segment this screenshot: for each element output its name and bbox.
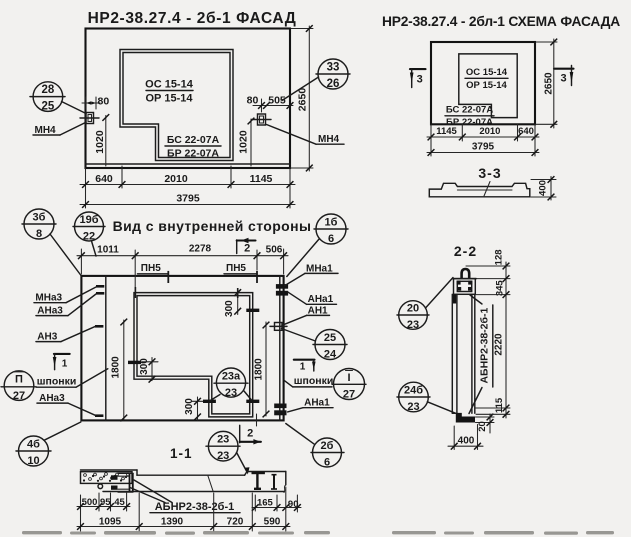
svg-text:26: 26	[327, 78, 340, 90]
svg-text:2010: 2010	[479, 126, 500, 137]
svg-text:2650: 2650	[297, 88, 309, 112]
svg-text:3795: 3795	[176, 193, 200, 205]
svg-text:НР2-38.27.4 - 2бл-1 СХЕМА ФАСА: НР2-38.27.4 - 2бл-1 СХЕМА ФАСАДА	[382, 14, 620, 29]
svg-text:2278: 2278	[189, 244, 212, 255]
svg-text:300: 300	[139, 358, 150, 375]
svg-text:23: 23	[217, 450, 229, 462]
svg-text:27: 27	[343, 389, 355, 401]
svg-text:400: 400	[538, 180, 549, 196]
svg-text:1011: 1011	[97, 245, 119, 256]
svg-text:23а: 23а	[222, 371, 241, 383]
svg-text:АНа1: АНа1	[308, 294, 334, 305]
svg-text:БС 22-07А: БС 22-07А	[446, 105, 494, 116]
svg-text:1: 1	[300, 362, 306, 373]
svg-text:3795: 3795	[472, 142, 495, 153]
svg-text:1145: 1145	[436, 126, 457, 137]
svg-text:БР 22-07А: БР 22-07А	[167, 148, 219, 160]
svg-text:1020: 1020	[238, 130, 250, 154]
svg-text:2010: 2010	[164, 173, 188, 185]
svg-text:2б: 2б	[321, 440, 334, 452]
svg-text:28: 28	[42, 84, 55, 96]
svg-text:АБНР2-38-2б-1: АБНР2-38-2б-1	[155, 501, 235, 513]
svg-text:МН4: МН4	[318, 134, 340, 145]
svg-text:3б: 3б	[33, 212, 46, 224]
svg-text:300: 300	[184, 398, 195, 415]
svg-text:1145: 1145	[250, 173, 273, 185]
svg-text:АНа1: АНа1	[304, 398, 330, 409]
svg-text:2220: 2220	[494, 333, 505, 356]
svg-text:3: 3	[560, 73, 566, 85]
svg-text:6: 6	[324, 457, 330, 469]
svg-text:6: 6	[328, 233, 334, 245]
svg-text:Вид с внутренней стороны: Вид с внутренней стороны	[113, 218, 312, 234]
svg-text:23: 23	[407, 319, 419, 331]
svg-text:90: 90	[288, 499, 299, 510]
svg-text:I: I	[347, 372, 350, 384]
svg-text:ОР 15-14: ОР 15-14	[466, 80, 507, 91]
svg-text:ПН5: ПН5	[141, 263, 161, 274]
svg-text:БС 22-07А: БС 22-07А	[167, 134, 220, 146]
svg-text:23: 23	[217, 434, 229, 446]
svg-text:1б: 1б	[325, 217, 338, 229]
svg-text:10: 10	[27, 455, 39, 467]
svg-text:1800: 1800	[253, 358, 264, 381]
svg-text:24: 24	[324, 349, 337, 361]
svg-text:20: 20	[477, 421, 488, 432]
svg-text:АНа3: АНа3	[39, 393, 65, 404]
svg-text:1-1: 1-1	[170, 446, 193, 461]
svg-text:80: 80	[247, 95, 259, 107]
svg-text:95: 95	[100, 497, 111, 508]
svg-text:128: 128	[494, 249, 505, 265]
svg-text:ОР 15-14: ОР 15-14	[145, 93, 193, 105]
svg-text:640: 640	[95, 173, 113, 185]
svg-text:МНа3: МНа3	[35, 292, 62, 303]
svg-text:ОС 15-14: ОС 15-14	[466, 67, 508, 78]
svg-text:1020: 1020	[94, 130, 106, 154]
svg-text:ПН5: ПН5	[226, 263, 246, 274]
svg-text:П: П	[15, 374, 23, 386]
svg-text:АН3: АН3	[37, 332, 57, 343]
svg-text:25: 25	[324, 332, 336, 344]
svg-text:590: 590	[264, 517, 281, 528]
svg-text:шпонки: шпонки	[37, 376, 77, 388]
svg-text:22: 22	[83, 231, 95, 243]
svg-text:80: 80	[98, 96, 110, 108]
svg-text:640: 640	[518, 126, 534, 137]
svg-text:115: 115	[494, 397, 505, 413]
svg-text:24б: 24б	[404, 385, 423, 397]
svg-text:НР2-38.27.4 - 2б-1 ФАСАД: НР2-38.27.4 - 2б-1 ФАСАД	[88, 10, 297, 27]
svg-text:23: 23	[225, 387, 237, 399]
svg-text:400: 400	[458, 436, 475, 447]
svg-text:1095: 1095	[99, 517, 122, 528]
svg-text:23: 23	[407, 401, 419, 413]
svg-text:1390: 1390	[161, 517, 184, 528]
svg-text:1800: 1800	[111, 356, 122, 379]
svg-text:19б: 19б	[79, 214, 98, 226]
svg-text:25: 25	[42, 101, 55, 113]
svg-text:8: 8	[36, 228, 42, 240]
svg-text:345: 345	[495, 280, 506, 297]
svg-text:500: 500	[82, 497, 98, 508]
svg-text:165: 165	[257, 498, 274, 509]
svg-text:45: 45	[114, 497, 125, 508]
svg-text:2650: 2650	[544, 72, 555, 95]
svg-text:ОС 15-14: ОС 15-14	[145, 79, 194, 91]
svg-text:2: 2	[247, 428, 253, 440]
svg-text:2: 2	[244, 243, 250, 255]
svg-text:2-2: 2-2	[454, 243, 477, 259]
svg-text:33: 33	[327, 62, 340, 74]
svg-text:3-3: 3-3	[478, 165, 501, 181]
svg-text:3: 3	[417, 74, 423, 86]
svg-text:300: 300	[224, 300, 235, 317]
svg-text:27: 27	[13, 390, 25, 402]
svg-text:20: 20	[407, 303, 419, 315]
svg-text:4б: 4б	[27, 439, 40, 451]
svg-text:АБНР2-38-2б-1: АБНР2-38-2б-1	[479, 307, 491, 383]
svg-text:АНа3: АНа3	[37, 305, 63, 316]
svg-text:720: 720	[227, 517, 244, 528]
svg-text:шпонки: шпонки	[294, 375, 334, 387]
svg-text:1: 1	[62, 359, 68, 370]
svg-text:506: 506	[266, 245, 283, 256]
